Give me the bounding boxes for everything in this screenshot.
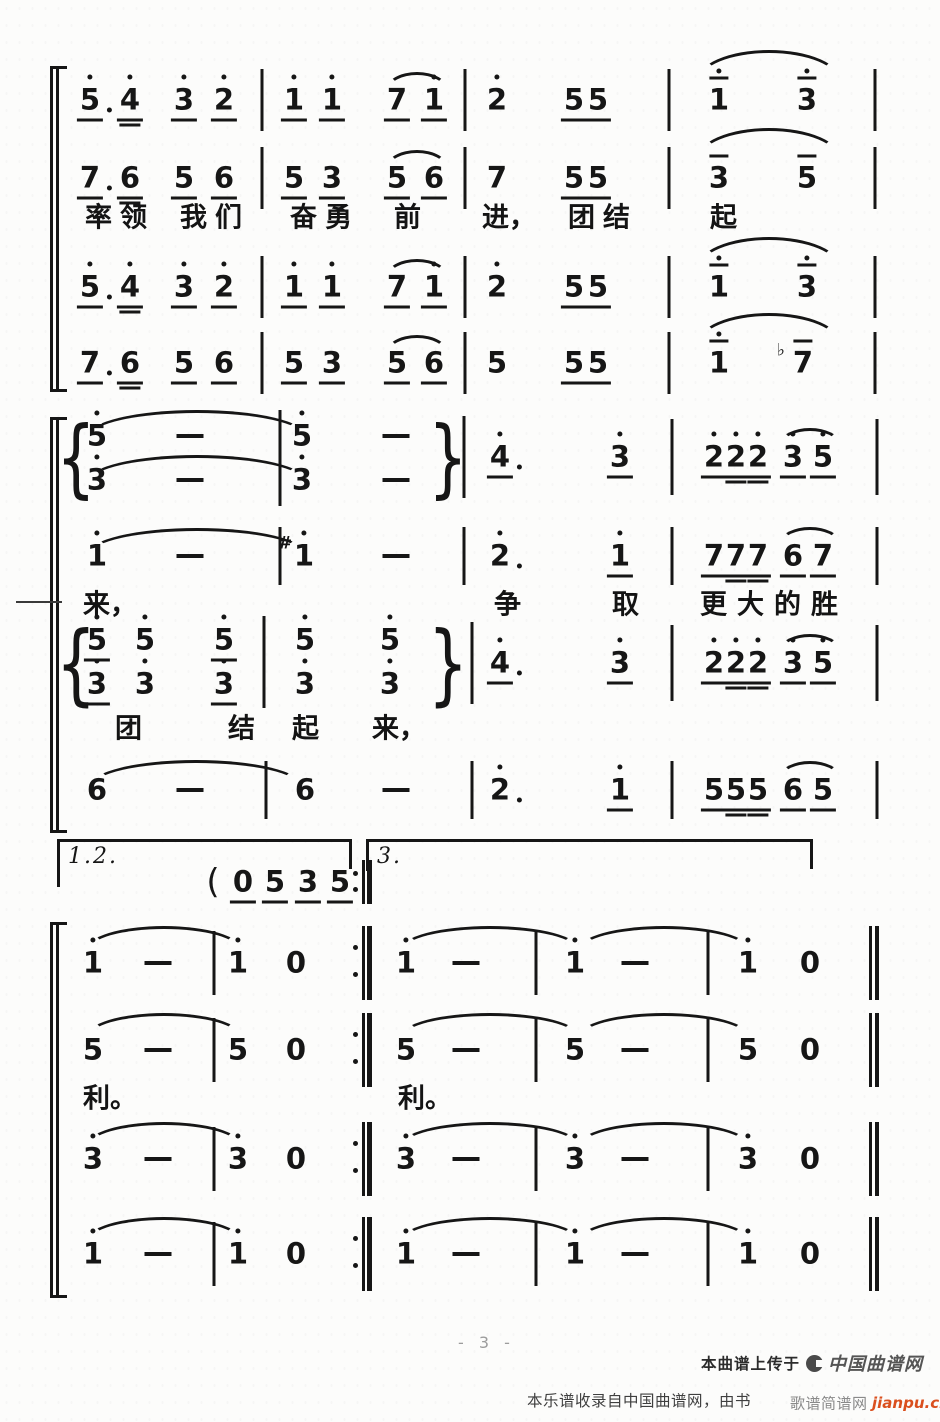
note: 7 xyxy=(487,164,507,193)
octave-dot xyxy=(95,531,100,536)
slur-arc xyxy=(400,926,580,974)
underline-beam xyxy=(211,382,237,385)
note-digit: 5 xyxy=(380,626,400,655)
underline-beam xyxy=(585,382,611,385)
bracket-serif xyxy=(50,417,67,420)
note: 4 xyxy=(490,443,510,472)
note-digit: 4 xyxy=(120,273,140,302)
barline xyxy=(668,147,671,209)
rest-note: 0 xyxy=(233,868,253,897)
octave-dot xyxy=(746,1229,751,1234)
note-digit: 5 xyxy=(588,349,608,378)
note-digit: 7 xyxy=(80,349,100,378)
underline-beam xyxy=(561,119,587,122)
note: ( xyxy=(206,865,219,899)
note-digit: 5 xyxy=(564,273,584,302)
note-digit: 6 xyxy=(214,164,234,193)
note-digit: 5 xyxy=(704,776,724,805)
underline-beam xyxy=(780,809,806,812)
note: 4 xyxy=(490,649,510,678)
note-digit: 5 xyxy=(174,164,194,193)
barline xyxy=(471,622,474,704)
bar-thick xyxy=(875,1217,879,1291)
note-digit: 1 xyxy=(322,86,342,115)
underline-beam xyxy=(327,901,353,904)
note: 5 xyxy=(564,164,584,193)
slur-arc xyxy=(780,634,840,666)
slur-arc xyxy=(386,259,448,295)
barline xyxy=(668,332,671,394)
score-canvas: 5432117125513765653567553554321171255137… xyxy=(0,0,940,1422)
logo-notch xyxy=(816,1360,824,1367)
note-digit: 5 xyxy=(330,868,350,897)
note: 5 xyxy=(564,86,584,115)
bracket-line xyxy=(56,417,59,833)
note: 2 xyxy=(214,273,234,302)
note: 5 xyxy=(174,349,194,378)
octave-dot xyxy=(292,262,297,267)
underline-beam xyxy=(384,119,410,122)
note-digit: 2 xyxy=(726,443,746,472)
note-digit: 5 xyxy=(214,626,234,655)
augmentation-dot xyxy=(107,295,112,300)
octave-dot xyxy=(143,615,148,620)
note-digit: ( xyxy=(206,865,219,899)
note-digit: 2 xyxy=(726,649,746,678)
lyric: 奋勇 xyxy=(290,196,360,235)
underline-beam xyxy=(607,682,633,685)
system-bracket xyxy=(50,417,60,833)
note: 2 xyxy=(726,649,746,678)
repeat-barline xyxy=(353,1217,371,1291)
barline xyxy=(874,69,877,131)
note-digit: 3 xyxy=(295,670,315,699)
underline-beam xyxy=(810,682,836,685)
note: 3 xyxy=(174,86,194,115)
note: 5 xyxy=(174,164,194,193)
note: 4 xyxy=(120,86,140,115)
note-digit: 2 xyxy=(490,542,510,571)
octave-dot xyxy=(128,262,133,267)
lyric: 我们 xyxy=(180,196,250,235)
lyric: 利。 xyxy=(398,1077,452,1116)
underline-beam xyxy=(295,901,321,904)
barline xyxy=(464,332,467,394)
note-digit: 0 xyxy=(800,1240,820,1269)
lyric: 取 xyxy=(612,583,639,622)
underline-beam xyxy=(421,306,447,309)
note-digit: 1 xyxy=(610,776,630,805)
note-digit: 0 xyxy=(233,868,253,897)
note-digit: 5 xyxy=(564,349,584,378)
note-digit: 5 xyxy=(588,164,608,193)
octave-dot xyxy=(300,455,305,460)
octave-dot xyxy=(388,659,393,664)
open-brace: { xyxy=(56,620,96,708)
barline xyxy=(463,527,466,585)
augmentation-dot xyxy=(517,465,522,470)
note: 5 xyxy=(284,349,304,378)
note: 2 xyxy=(487,86,507,115)
note-digit: 0 xyxy=(800,949,820,978)
underline-beam xyxy=(748,481,769,484)
note: 3 xyxy=(380,670,400,699)
underline-beam xyxy=(171,306,197,309)
note-digit: 0 xyxy=(286,1145,306,1174)
underline-beam xyxy=(780,575,806,578)
lyric: 前 xyxy=(394,196,421,235)
note: 5 xyxy=(80,273,100,302)
underline-beam xyxy=(211,306,237,309)
rest-note: 0 xyxy=(286,1240,306,1269)
footer-jianpu-site: 歌谱简谱网 xyxy=(790,1393,868,1414)
note-digit: 2 xyxy=(490,776,510,805)
octave-dot xyxy=(302,531,307,536)
note-digit: 7 xyxy=(748,542,768,571)
lyric: 团结 xyxy=(568,196,638,235)
octave-dot xyxy=(618,531,623,536)
note: 7 xyxy=(80,164,100,193)
quppu-logo-icon xyxy=(806,1355,823,1372)
barline xyxy=(261,256,264,318)
bracket-line xyxy=(50,922,53,1298)
barline xyxy=(464,69,467,131)
octave-dot xyxy=(182,75,187,80)
underline-beam xyxy=(211,119,237,122)
note: 1 xyxy=(322,273,342,302)
note-digit: 2 xyxy=(487,86,507,115)
underline-beam xyxy=(607,575,633,578)
underline-beam xyxy=(171,119,197,122)
note: 4 xyxy=(120,273,140,302)
repeat-barline xyxy=(353,926,371,1000)
note-digit: 5 xyxy=(80,86,100,115)
underline-beam xyxy=(607,809,633,812)
repeat-barline xyxy=(353,1013,371,1087)
rest-note: 0 xyxy=(286,949,306,978)
repeat-dot xyxy=(353,1141,358,1146)
slur-arc xyxy=(578,1013,750,1061)
note: 7 xyxy=(748,542,768,571)
lyric: 争 xyxy=(494,583,521,622)
barline xyxy=(261,69,264,131)
note-digit: 3 xyxy=(322,164,342,193)
note: 6 xyxy=(120,349,140,378)
bracket-line xyxy=(50,66,53,392)
bracket-serif xyxy=(50,389,67,392)
bracket-serif xyxy=(50,922,67,925)
barline xyxy=(263,616,266,664)
note-digit: 6 xyxy=(120,164,140,193)
barline xyxy=(668,69,671,131)
close-brace: } xyxy=(428,620,468,708)
note-digit: 3 xyxy=(380,670,400,699)
bar-thin xyxy=(362,1013,365,1087)
note-digit: 1 xyxy=(284,273,304,302)
slur-arc xyxy=(578,926,750,974)
underline-beam xyxy=(561,382,587,385)
note-digit: 5 xyxy=(284,349,304,378)
note: 3 xyxy=(610,443,630,472)
barline xyxy=(874,256,877,318)
underline-beam xyxy=(487,476,513,479)
octave-dot xyxy=(734,638,739,643)
note-digit: 5 xyxy=(588,86,608,115)
note: 2 xyxy=(748,443,768,472)
repeat-dot xyxy=(353,1168,358,1173)
duration-dash xyxy=(383,434,410,438)
barline xyxy=(876,527,879,585)
note: 5 xyxy=(748,776,768,805)
underline-beam xyxy=(117,382,143,385)
repeat-dot xyxy=(353,945,358,950)
underline-beam xyxy=(607,476,633,479)
note: 3 xyxy=(174,273,194,302)
underline-beam xyxy=(421,119,447,122)
bar-thin xyxy=(362,1217,365,1291)
underline-beam xyxy=(745,575,771,578)
lyric: 进， xyxy=(482,196,536,235)
bar-thin xyxy=(362,860,365,904)
note-digit: 0 xyxy=(800,1145,820,1174)
note-digit: 3 xyxy=(135,670,155,699)
bar-thick xyxy=(367,1013,372,1087)
lyric: 率领 xyxy=(85,196,155,235)
slur-arc xyxy=(88,528,306,580)
note: 5 xyxy=(80,86,100,115)
note: 1 xyxy=(610,542,630,571)
slur-arc xyxy=(386,72,448,108)
duration-dash xyxy=(383,554,410,558)
note: 2 xyxy=(726,443,746,472)
note: 2 xyxy=(490,776,510,805)
bar-thin xyxy=(362,926,365,1000)
octave-dot xyxy=(618,638,623,643)
underline-beam xyxy=(726,687,747,690)
note-digit: 2 xyxy=(748,649,768,678)
volta-label: 3. xyxy=(377,844,402,869)
note: 5 xyxy=(564,349,584,378)
repeat-dot xyxy=(353,1236,358,1241)
octave-dot xyxy=(746,1134,751,1139)
note: 2 xyxy=(214,86,234,115)
octave-dot xyxy=(498,765,503,770)
octave-dot xyxy=(712,638,717,643)
augmentation-dot xyxy=(107,108,112,113)
barline xyxy=(668,256,671,318)
site-logo-text: 中国曲谱网 xyxy=(828,1350,923,1376)
underline-beam xyxy=(281,119,307,122)
lyric: 利。 xyxy=(83,1077,137,1116)
octave-dot xyxy=(182,262,187,267)
note: 2 xyxy=(704,443,724,472)
barline xyxy=(876,419,879,495)
underline-beam xyxy=(77,119,103,122)
lyric: 起 xyxy=(710,196,737,235)
note-digit: 5 xyxy=(487,349,507,378)
underline-beam xyxy=(384,306,410,309)
volta-tick xyxy=(810,839,813,869)
note-digit: 7 xyxy=(704,542,724,571)
slur-arc xyxy=(780,761,840,793)
bar-thick xyxy=(875,1013,879,1087)
open-brace: { xyxy=(56,415,95,501)
volta-label: 1.2. xyxy=(68,844,118,869)
octave-dot xyxy=(292,75,297,80)
octave-dot xyxy=(222,615,227,620)
underline-beam xyxy=(77,306,103,309)
note: 7 xyxy=(704,542,724,571)
underline-beam xyxy=(211,703,237,706)
barline xyxy=(876,761,879,819)
note: 5 xyxy=(284,164,304,193)
underline-beam xyxy=(745,809,771,812)
note: 2 xyxy=(490,542,510,571)
underline-beam xyxy=(745,476,771,479)
rest-note: 0 xyxy=(800,1240,820,1269)
octave-dot xyxy=(498,432,503,437)
bar-thick xyxy=(367,1122,372,1196)
sheet-music-page: 5432117125513765653567553554321171255137… xyxy=(0,0,940,1422)
note: 2 xyxy=(748,649,768,678)
octave-dot xyxy=(222,659,227,664)
note: 2 xyxy=(487,273,507,302)
note-digit: 3 xyxy=(174,86,194,115)
volta-tick xyxy=(57,839,60,887)
underline-beam xyxy=(561,306,587,309)
underline-beam xyxy=(281,382,307,385)
underline-beam xyxy=(120,124,141,127)
note: 1 xyxy=(322,86,342,115)
duration-dash xyxy=(383,478,410,482)
note-digit: 5 xyxy=(80,273,100,302)
barline xyxy=(876,625,879,701)
underline-beam xyxy=(780,682,806,685)
note-digit: 5 xyxy=(726,776,746,805)
note: 5 xyxy=(135,626,155,655)
rest-note: 0 xyxy=(286,1145,306,1174)
repeat-dot xyxy=(353,1263,358,1268)
note-digit: 2 xyxy=(704,649,724,678)
underline-beam xyxy=(726,814,747,817)
barline xyxy=(671,419,674,495)
note-digit: 1 xyxy=(610,542,630,571)
note-digit: 5 xyxy=(265,868,285,897)
augmentation-dot xyxy=(107,186,112,191)
note: 7 xyxy=(726,542,746,571)
slur-arc xyxy=(386,150,448,186)
note: 1 xyxy=(284,86,304,115)
augmentation-dot xyxy=(517,671,522,676)
slur-arc xyxy=(386,335,448,371)
octave-dot xyxy=(88,75,93,80)
bracket-line xyxy=(50,417,53,833)
underline-beam xyxy=(810,575,836,578)
note-digit: 5 xyxy=(748,776,768,805)
page-number: - 3 - xyxy=(458,1333,515,1352)
note: 5 xyxy=(726,776,746,805)
system-bracket xyxy=(50,66,60,392)
bar-thin xyxy=(869,926,872,1000)
underline-beam xyxy=(319,306,345,309)
underline-beam xyxy=(748,687,769,690)
underline-beam xyxy=(319,119,345,122)
note-digit: 3 xyxy=(214,670,234,699)
repeat-dot xyxy=(353,887,358,892)
final-barline xyxy=(869,1217,879,1291)
slur-arc xyxy=(696,128,842,192)
octave-dot xyxy=(388,615,393,620)
note: 1 xyxy=(284,273,304,302)
slur-arc xyxy=(780,428,840,460)
note: 5 xyxy=(588,349,608,378)
rest-note: 0 xyxy=(800,1036,820,1065)
slur-arc xyxy=(86,926,242,974)
note-digit: 4 xyxy=(120,86,140,115)
underline-beam xyxy=(230,901,256,904)
note-digit: 0 xyxy=(800,1036,820,1065)
note-digit: 2 xyxy=(704,443,724,472)
note-digit: 0 xyxy=(286,1036,306,1065)
note-digit: 2 xyxy=(214,86,234,115)
octave-dot xyxy=(756,638,761,643)
volta-bracket: 3. xyxy=(366,839,813,842)
system-bracket xyxy=(50,922,60,1298)
volta-tick xyxy=(366,839,369,871)
note: 3 xyxy=(214,670,234,699)
underline-beam xyxy=(262,901,288,904)
rest-note: 0 xyxy=(286,1036,306,1065)
slur-arc xyxy=(578,1217,750,1265)
underline-beam xyxy=(585,119,611,122)
note-digit: 5 xyxy=(295,626,315,655)
octave-dot xyxy=(746,938,751,943)
note: 2 xyxy=(704,649,724,678)
bar-thin xyxy=(869,1122,872,1196)
bar-thick xyxy=(367,1217,372,1291)
note-digit: 0 xyxy=(286,949,306,978)
bar-thick xyxy=(875,926,879,1000)
underline-beam xyxy=(120,387,141,390)
slur-arc xyxy=(578,1122,750,1170)
note-digit: 6 xyxy=(120,349,140,378)
note-digit: 4 xyxy=(490,443,510,472)
slur-arc xyxy=(88,455,306,507)
lyric: 起 xyxy=(292,707,319,746)
note: 5 xyxy=(588,164,608,193)
note-digit: 2 xyxy=(487,273,507,302)
lyric: 结 xyxy=(228,707,255,746)
underline-beam xyxy=(810,476,836,479)
octave-dot xyxy=(330,75,335,80)
bracket-serif xyxy=(50,1295,67,1298)
barline xyxy=(261,332,264,394)
slur-arc xyxy=(90,760,302,812)
note: 5 xyxy=(295,626,315,655)
repeat-dot xyxy=(353,871,358,876)
repeat-dot xyxy=(353,972,358,977)
note: 5 xyxy=(487,349,507,378)
lyric: 更大的胜 xyxy=(700,583,848,622)
note: 6 xyxy=(214,164,234,193)
note: 3 xyxy=(295,670,315,699)
footer-jianpu-domain[interactable]: jianpu.cn xyxy=(872,1394,940,1412)
note-digit: 7 xyxy=(80,164,100,193)
octave-dot xyxy=(128,75,133,80)
underline-beam xyxy=(421,197,447,200)
note-digit: 0 xyxy=(286,1240,306,1269)
underline-beam xyxy=(77,382,103,385)
